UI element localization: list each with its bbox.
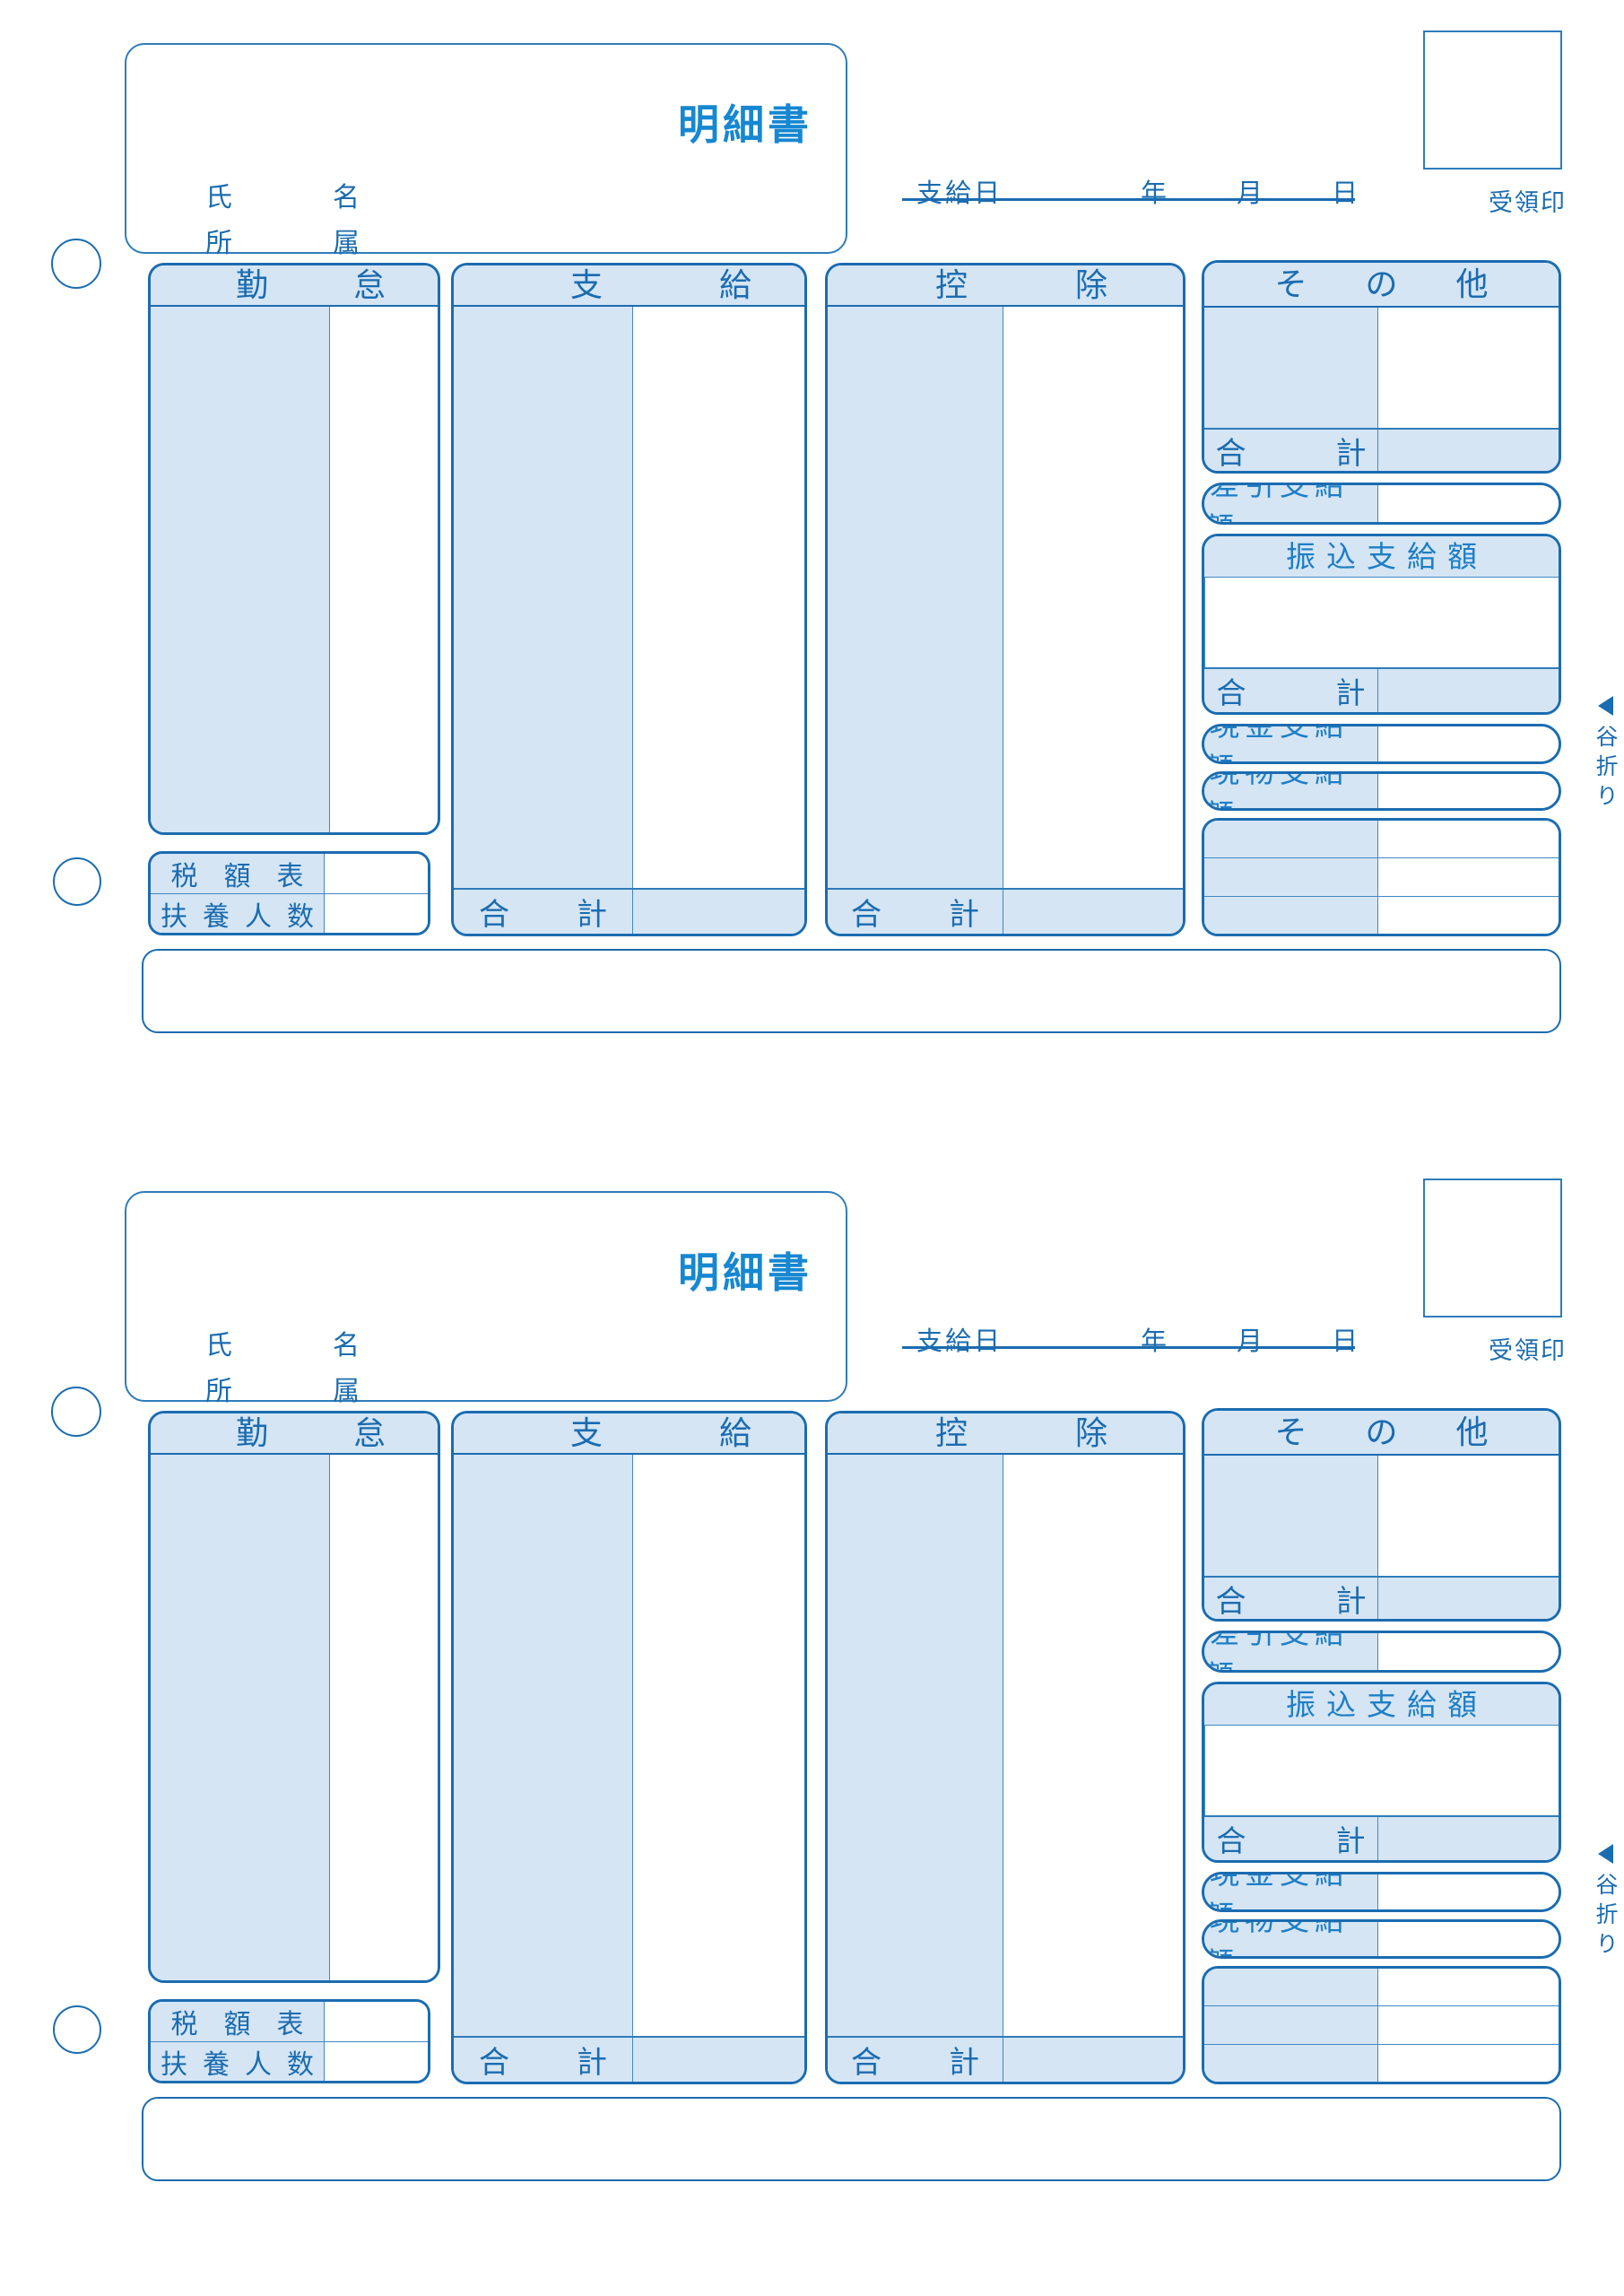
day-label: 日 [1332, 1320, 1358, 1358]
table-row [1204, 821, 1559, 857]
deduction-column: 控除 合計 [825, 263, 1185, 936]
dependents-label: 扶養人数 [151, 2042, 325, 2082]
tax-table-label: 税額表 [151, 854, 325, 893]
payslip-form: 明細書 氏 名 所 属 支給日 年 月 日 受領印 勤怠 支給 合計 控除 [0, 1148, 1624, 2296]
fold-triangle-icon [1598, 1844, 1613, 1864]
deduction-values-cell[interactable] [1003, 307, 1183, 888]
header-info-box: 明細書 氏 名 所 属 [125, 1191, 847, 1402]
attendance-item-names-cell [151, 1455, 330, 1980]
other-total-value[interactable] [1378, 1578, 1559, 1619]
other-extra-table [1202, 818, 1561, 936]
fold-mark-label: 谷折り [1589, 725, 1621, 813]
month-label: 月 [1237, 1320, 1263, 1358]
transfer-payment-header: 振込支給額 [1204, 1684, 1559, 1725]
net-payment-label: 差引支給額 [1204, 485, 1378, 522]
other-header: その他 [1204, 1411, 1559, 1456]
payment-total-value[interactable] [633, 890, 804, 934]
tax-info-box: 税額表 扶養人数 [148, 851, 430, 935]
punch-hole-bottom [53, 857, 101, 906]
name-value-field[interactable] [360, 1318, 826, 1358]
punch-hole-top [51, 239, 101, 289]
payment-column: 支給 合計 [451, 263, 807, 936]
other-header: その他 [1204, 263, 1559, 308]
payment-values-cell[interactable] [633, 1455, 804, 2036]
deduction-item-names-cell [828, 1455, 1003, 2036]
other-item-names-cell [1204, 308, 1378, 428]
table-row [1204, 1969, 1559, 2005]
other-total-label: 合計 [1204, 430, 1378, 471]
attendance-column: 勤怠 [148, 1411, 440, 1983]
table-row [1204, 857, 1559, 895]
transfer-payment-box: 振込支給額 合計 [1202, 1682, 1561, 1863]
deduction-header: 控除 [828, 1413, 1183, 1455]
form-title: 明細書 [678, 1240, 812, 1300]
payment-total-row: 合計 [454, 2036, 804, 2082]
deduction-total-row: 合計 [828, 888, 1183, 934]
dependents-value[interactable] [325, 894, 428, 934]
tax-table-value[interactable] [325, 2002, 428, 2041]
department-value-field[interactable] [360, 1364, 826, 1404]
other-column: その他 合計 [1202, 1408, 1561, 1622]
transfer-payment-box: 振込支給額 合計 [1202, 534, 1561, 715]
year-label: 年 [1141, 1320, 1167, 1358]
other-total-row: 合計 [1204, 1576, 1559, 1619]
transfer-total-value[interactable] [1378, 669, 1559, 712]
payment-date-label: 支給日 [916, 172, 1003, 210]
remarks-box[interactable] [142, 949, 1561, 1033]
cash-payment-value[interactable] [1378, 1874, 1559, 1909]
table-row [1204, 2005, 1559, 2043]
fold-mark-label: 谷折り [1589, 1873, 1621, 1961]
dependents-row: 扶養人数 [151, 893, 428, 934]
payment-column: 支給 合計 [451, 1411, 807, 2084]
cash-payment-row: 現金支給額 [1202, 724, 1561, 764]
attendance-column: 勤怠 [148, 263, 440, 835]
tax-table-row: 税額表 [151, 854, 428, 893]
net-payment-row: 差引支給額 [1202, 1631, 1561, 1673]
transfer-values-cell[interactable] [1205, 578, 1559, 667]
header-info-box: 明細書 氏 名 所 属 [125, 43, 847, 254]
receipt-stamp-label: 受領印 [1489, 183, 1567, 218]
cash-payment-value[interactable] [1378, 726, 1559, 761]
transfer-total-row: 合計 [1204, 1815, 1559, 1860]
extra-row-label-cell [1204, 897, 1378, 934]
remarks-box[interactable] [142, 2097, 1561, 2181]
tax-table-value[interactable] [325, 854, 428, 893]
in-kind-payment-value[interactable] [1378, 1922, 1559, 1956]
deduction-values-cell[interactable] [1003, 1455, 1183, 2036]
deduction-total-row: 合計 [828, 2036, 1183, 2082]
other-values-cell[interactable] [1378, 308, 1559, 428]
deduction-header: 控除 [828, 265, 1183, 307]
transfer-total-value[interactable] [1378, 1817, 1559, 1860]
punch-hole-bottom [53, 2005, 101, 2054]
extra-row-value-cell[interactable] [1378, 858, 1559, 895]
other-extra-table [1202, 1966, 1561, 2084]
deduction-item-names-cell [828, 307, 1003, 888]
net-payment-label: 差引支給額 [1204, 1633, 1378, 1670]
payment-item-names-cell [454, 307, 633, 888]
tax-table-label: 税額表 [151, 2002, 325, 2041]
transfer-total-label: 合計 [1204, 669, 1378, 712]
payment-header: 支給 [454, 265, 804, 307]
net-payment-value[interactable] [1378, 1633, 1559, 1670]
transfer-payment-header: 振込支給額 [1204, 536, 1559, 577]
other-values-cell[interactable] [1378, 1456, 1559, 1576]
extra-row-value-cell[interactable] [1378, 2045, 1559, 2082]
attendance-header: 勤怠 [151, 1413, 438, 1455]
extra-row-label-cell [1204, 1969, 1378, 2005]
payslip-form: 明細書 氏 名 所 属 支給日 年 月 日 受領印 勤怠 支給 合計 控除 [0, 0, 1624, 1148]
fold-mark: 谷折り [1590, 1844, 1620, 1961]
other-column: その他 合計 [1202, 260, 1561, 474]
receipt-stamp-box[interactable] [1423, 30, 1562, 170]
extra-row-value-cell[interactable] [1378, 821, 1559, 857]
deduction-total-value[interactable] [1003, 890, 1183, 934]
payment-total-value[interactable] [633, 2038, 804, 2082]
in-kind-payment-value[interactable] [1378, 774, 1559, 808]
deduction-total-label: 合計 [828, 890, 1003, 934]
form-title: 明細書 [678, 92, 812, 152]
payment-date-underline [902, 1346, 1355, 1349]
transfer-total-label: 合計 [1204, 1817, 1378, 1860]
deduction-total-label: 合計 [828, 2038, 1003, 2082]
punch-hole-top [51, 1387, 101, 1437]
cash-payment-label: 現金支給額 [1204, 1874, 1378, 1909]
receipt-stamp-label: 受領印 [1489, 1331, 1567, 1366]
dependents-label: 扶養人数 [151, 894, 325, 934]
other-total-label: 合計 [1204, 1578, 1378, 1619]
receipt-stamp-box[interactable] [1423, 1178, 1562, 1318]
payment-total-row: 合計 [454, 888, 804, 934]
dependents-value[interactable] [325, 2042, 428, 2082]
payment-date-underline [902, 198, 1355, 201]
deduction-column: 控除 合計 [825, 1411, 1185, 2084]
attendance-header: 勤怠 [151, 265, 438, 307]
extra-row-value-cell[interactable] [1378, 897, 1559, 934]
table-row [1204, 2044, 1559, 2082]
fold-mark: 谷折り [1590, 696, 1620, 813]
year-label: 年 [1141, 172, 1167, 210]
in-kind-payment-row: 現物支給額 [1202, 1919, 1561, 1959]
fold-triangle-icon [1598, 696, 1613, 716]
department-value-field[interactable] [360, 216, 826, 256]
payment-item-names-cell [454, 1455, 633, 2036]
extra-row-value-cell[interactable] [1378, 1969, 1559, 2005]
in-kind-payment-label: 現物支給額 [1204, 774, 1378, 808]
cash-payment-row: 現金支給額 [1202, 1872, 1561, 1912]
payment-total-label: 合計 [454, 890, 633, 934]
attendance-values-cell[interactable] [330, 307, 438, 832]
table-row [1204, 896, 1559, 934]
tax-table-row: 税額表 [151, 2002, 428, 2041]
extra-row-label-cell [1204, 2045, 1378, 2082]
payment-date-label: 支給日 [916, 1320, 1003, 1358]
other-total-row: 合計 [1204, 428, 1559, 471]
payment-values-cell[interactable] [633, 307, 804, 888]
attendance-item-names-cell [151, 307, 330, 832]
extra-row-label-cell [1204, 2006, 1378, 2043]
transfer-total-row: 合計 [1204, 667, 1559, 712]
month-label: 月 [1237, 172, 1263, 210]
attendance-values-cell[interactable] [330, 1455, 438, 1980]
net-payment-row: 差引支給額 [1202, 483, 1561, 525]
payment-total-label: 合計 [454, 2038, 633, 2082]
payment-header: 支給 [454, 1413, 804, 1455]
name-value-field[interactable] [360, 170, 826, 210]
extra-row-label-cell [1204, 858, 1378, 895]
other-item-names-cell [1204, 1456, 1378, 1576]
extra-row-value-cell[interactable] [1378, 2006, 1559, 2043]
in-kind-payment-label: 現物支給額 [1204, 1922, 1378, 1956]
cash-payment-label: 現金支給額 [1204, 726, 1378, 761]
dependents-row: 扶養人数 [151, 2041, 428, 2082]
tax-info-box: 税額表 扶養人数 [148, 1999, 430, 2083]
other-total-value[interactable] [1378, 430, 1559, 471]
extra-row-label-cell [1204, 821, 1378, 857]
in-kind-payment-row: 現物支給額 [1202, 771, 1561, 811]
day-label: 日 [1332, 172, 1358, 210]
net-payment-value[interactable] [1378, 485, 1559, 522]
deduction-total-value[interactable] [1003, 2038, 1183, 2082]
transfer-values-cell[interactable] [1205, 1726, 1559, 1815]
